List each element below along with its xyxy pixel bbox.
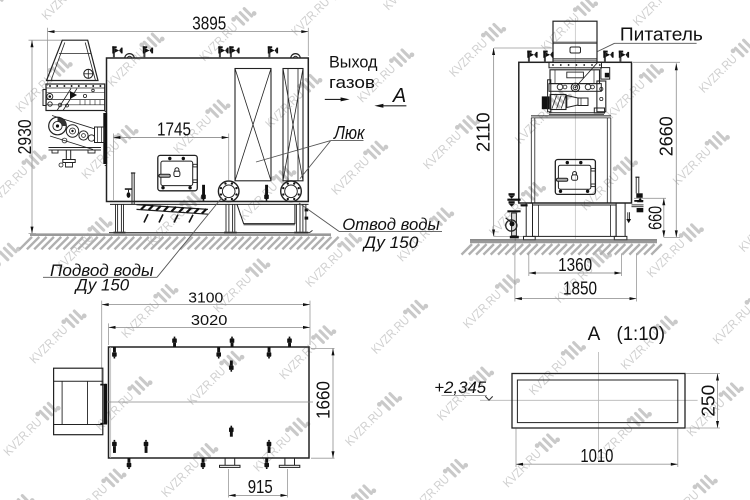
svg-text:+2,345: +2,345 <box>434 378 487 397</box>
svg-text:Ду 150: Ду 150 <box>362 233 419 252</box>
svg-text:915: 915 <box>248 476 273 497</box>
svg-text:250: 250 <box>698 385 719 417</box>
svg-text:2930: 2930 <box>14 119 35 154</box>
svg-text:1850: 1850 <box>563 278 597 299</box>
svg-text:2110: 2110 <box>473 112 494 152</box>
svg-text:А: А <box>588 324 601 345</box>
svg-text:Питатель: Питатель <box>620 24 703 44</box>
svg-text:А: А <box>392 85 406 107</box>
svg-text:Выход: Выход <box>329 52 378 71</box>
svg-text:Ду 150: Ду 150 <box>74 276 130 295</box>
svg-text:3020: 3020 <box>191 313 228 329</box>
svg-text:1360: 1360 <box>558 254 592 275</box>
svg-text:1010: 1010 <box>580 445 613 466</box>
svg-text:газов: газов <box>329 73 375 92</box>
svg-text:2660: 2660 <box>656 116 677 156</box>
svg-text:1660: 1660 <box>313 381 334 419</box>
svg-text:3895: 3895 <box>192 12 226 33</box>
svg-text:1745: 1745 <box>157 119 191 140</box>
svg-text:3100: 3100 <box>188 290 223 306</box>
svg-text:(1:10): (1:10) <box>617 324 666 345</box>
svg-text:660: 660 <box>644 206 665 230</box>
